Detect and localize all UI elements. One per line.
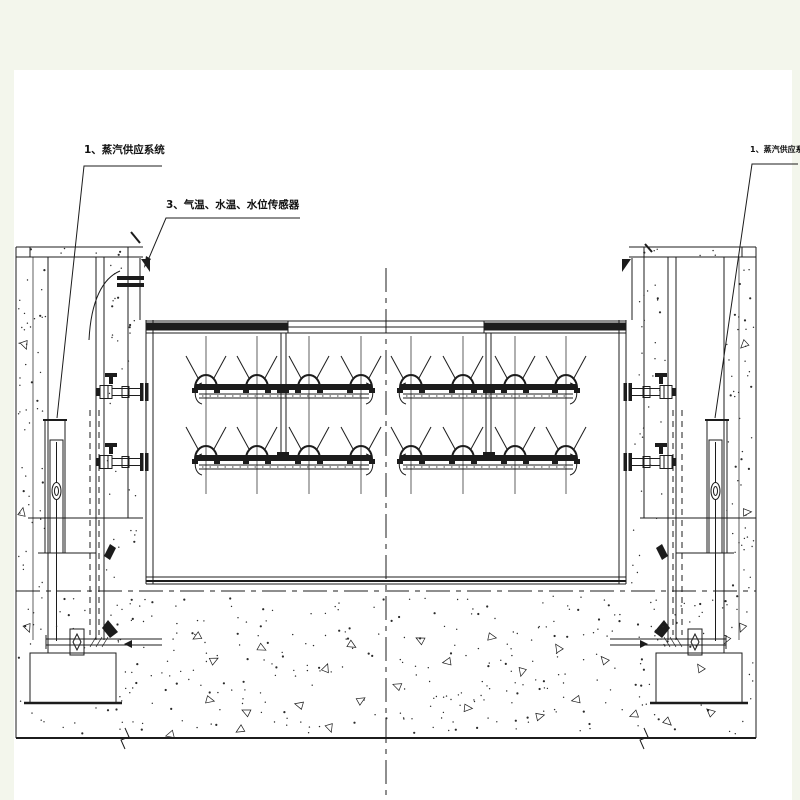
steam-pipe (400, 455, 576, 461)
drawing-page: 1、蒸汽供应系统 3、气温、水温、水位传感器 1、蒸汽供应系统 (0, 0, 800, 800)
steam-pipe (196, 384, 372, 390)
right-pier-base-recess (650, 653, 748, 703)
gate-top-beam-right (484, 323, 626, 331)
gate-top-beam-left (146, 323, 288, 331)
engineering-section-drawing: 1、蒸汽供应系统 3、气温、水温、水位传感器 1、蒸汽供应系统 (0, 0, 800, 800)
sensor-conduit-band (117, 276, 144, 280)
left-pier-base-recess (24, 653, 122, 703)
steam-pipe (196, 455, 372, 461)
callout-steam-left-text: 1、蒸汽供应系统 (84, 143, 165, 156)
callout-sensors-text: 3、气温、水温、水位传感器 (166, 198, 300, 211)
callout-steam-right-text: 1、蒸汽供应系统 (750, 144, 800, 154)
steam-pipe (400, 384, 576, 390)
